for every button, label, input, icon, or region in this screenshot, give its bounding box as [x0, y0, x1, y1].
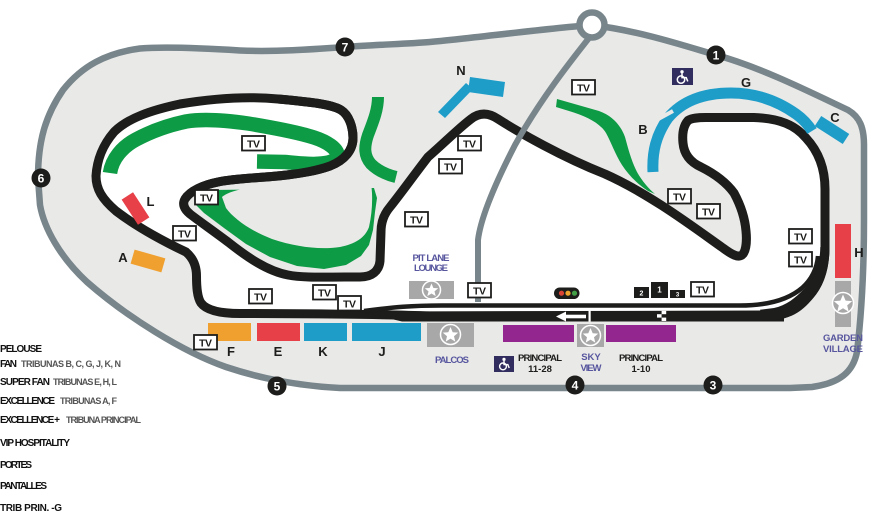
svg-text:GARDEN: GARDEN — [823, 333, 863, 344]
svg-text:6: 6 — [38, 171, 45, 185]
svg-text:TV: TV — [794, 231, 807, 243]
svg-text:1: 1 — [713, 48, 720, 62]
svg-text:A: A — [118, 250, 128, 265]
svg-text:PALCOS: PALCOS — [435, 355, 469, 366]
svg-text:PRINCIPAL: PRINCIPAL — [518, 353, 562, 364]
svg-text:J: J — [378, 344, 385, 359]
svg-text:E: E — [274, 344, 283, 359]
svg-text:TV: TV — [794, 254, 807, 266]
svg-text:VIP HOSPITALITY: VIP HOSPITALITY — [0, 438, 70, 449]
svg-text:VILLAGE: VILLAGE — [823, 344, 863, 355]
svg-text:TV: TV — [254, 291, 267, 303]
svg-text:PELOUSE: PELOUSE — [0, 344, 42, 355]
svg-text:TRIBUNAS B, C, G, J, K, N: TRIBUNAS B, C, G, J, K, N — [21, 359, 121, 369]
svg-text:TV: TV — [473, 285, 486, 297]
svg-text:N: N — [456, 63, 465, 78]
svg-text:TV: TV — [343, 298, 356, 310]
svg-text:TV: TV — [200, 192, 213, 204]
svg-text:PRINCIPAL: PRINCIPAL — [619, 353, 663, 364]
svg-text:1: 1 — [657, 286, 662, 295]
svg-text:G: G — [741, 75, 751, 90]
svg-text:PANTALLES: PANTALLES — [0, 481, 47, 492]
svg-text:FAN: FAN — [0, 359, 17, 370]
svg-text:TV: TV — [696, 284, 709, 296]
svg-text:SUPER FAN: SUPER FAN — [0, 377, 50, 388]
svg-text:K: K — [318, 344, 328, 359]
svg-text:TRIB PRIN. -G: TRIB PRIN. -G — [0, 503, 62, 514]
svg-text:TRIBUNAS A, F: TRIBUNAS A, F — [60, 396, 118, 406]
svg-text:SKY: SKY — [581, 352, 601, 363]
svg-text:VIEW: VIEW — [581, 363, 602, 374]
svg-text:11-28: 11-28 — [528, 364, 552, 375]
svg-text:7: 7 — [342, 40, 349, 54]
svg-text:5: 5 — [274, 379, 281, 393]
svg-text:TV: TV — [410, 214, 423, 226]
svg-text:TRIBUNA PRINCIPAL: TRIBUNA PRINCIPAL — [66, 415, 142, 425]
svg-text:TV: TV — [673, 191, 686, 203]
svg-text:LOUNGE: LOUNGE — [414, 263, 448, 274]
svg-text:PORTES: PORTES — [0, 460, 32, 471]
svg-text:B: B — [638, 122, 647, 137]
svg-text:TV: TV — [577, 82, 590, 94]
svg-text:EXCELLENCE: EXCELLENCE — [0, 396, 55, 407]
svg-text:TV: TV — [702, 206, 715, 218]
svg-text:TV: TV — [199, 337, 212, 349]
svg-text:2: 2 — [640, 291, 644, 298]
svg-text:EXCELLENCE +: EXCELLENCE + — [0, 415, 60, 426]
svg-text:TV: TV — [178, 228, 191, 240]
svg-text:4: 4 — [572, 378, 579, 392]
svg-text:C: C — [830, 110, 840, 125]
svg-text:TRIBUNAS E, H, L: TRIBUNAS E, H, L — [53, 377, 118, 387]
svg-text:L: L — [147, 194, 155, 209]
svg-text:H: H — [854, 245, 863, 260]
svg-text:1-10: 1-10 — [631, 364, 650, 375]
svg-text:TV: TV — [463, 138, 476, 150]
svg-text:TV: TV — [247, 138, 260, 150]
svg-text:F: F — [227, 344, 235, 359]
svg-text:TV: TV — [318, 287, 331, 299]
svg-text:3: 3 — [710, 378, 717, 392]
svg-text:TV: TV — [444, 161, 457, 173]
